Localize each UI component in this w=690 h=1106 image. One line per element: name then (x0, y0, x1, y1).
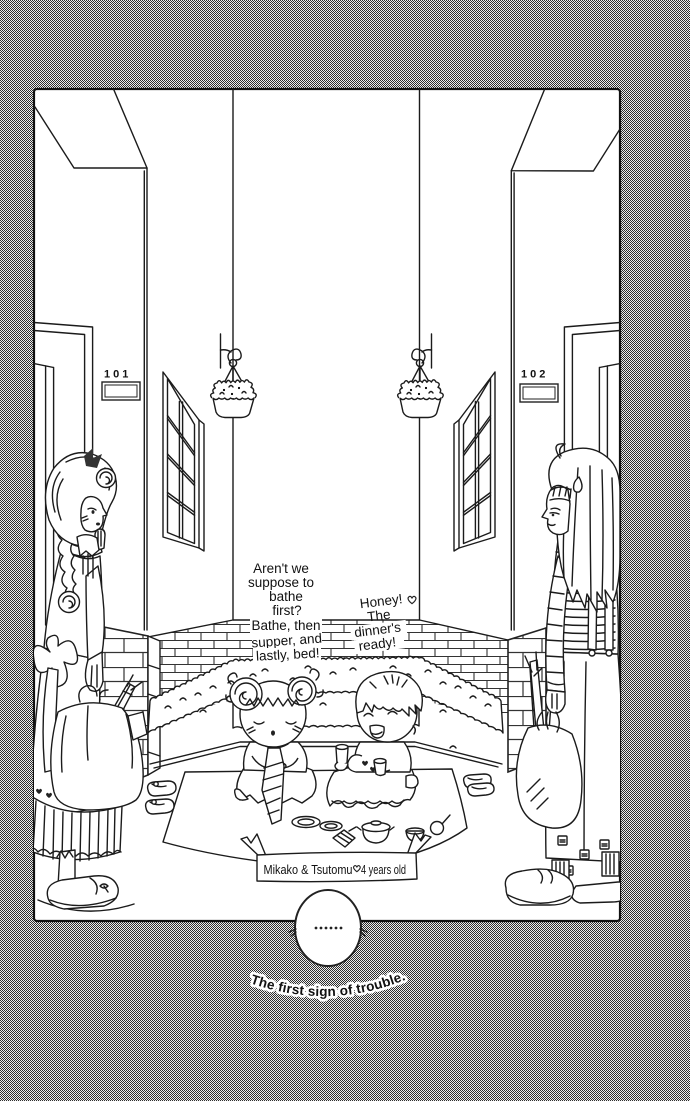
svg-text:102: 102 (521, 369, 548, 381)
svg-text:suppose to: suppose to (248, 575, 314, 590)
svg-text:bathe: bathe (269, 589, 303, 604)
svg-text:Mikako & Tsutomu: Mikako & Tsutomu (264, 863, 353, 877)
svg-text:Aren't we: Aren't we (253, 561, 309, 576)
svg-text:101: 101 (104, 369, 131, 381)
svg-text:first?: first? (272, 603, 301, 618)
svg-text:4 years old: 4 years old (361, 863, 406, 877)
